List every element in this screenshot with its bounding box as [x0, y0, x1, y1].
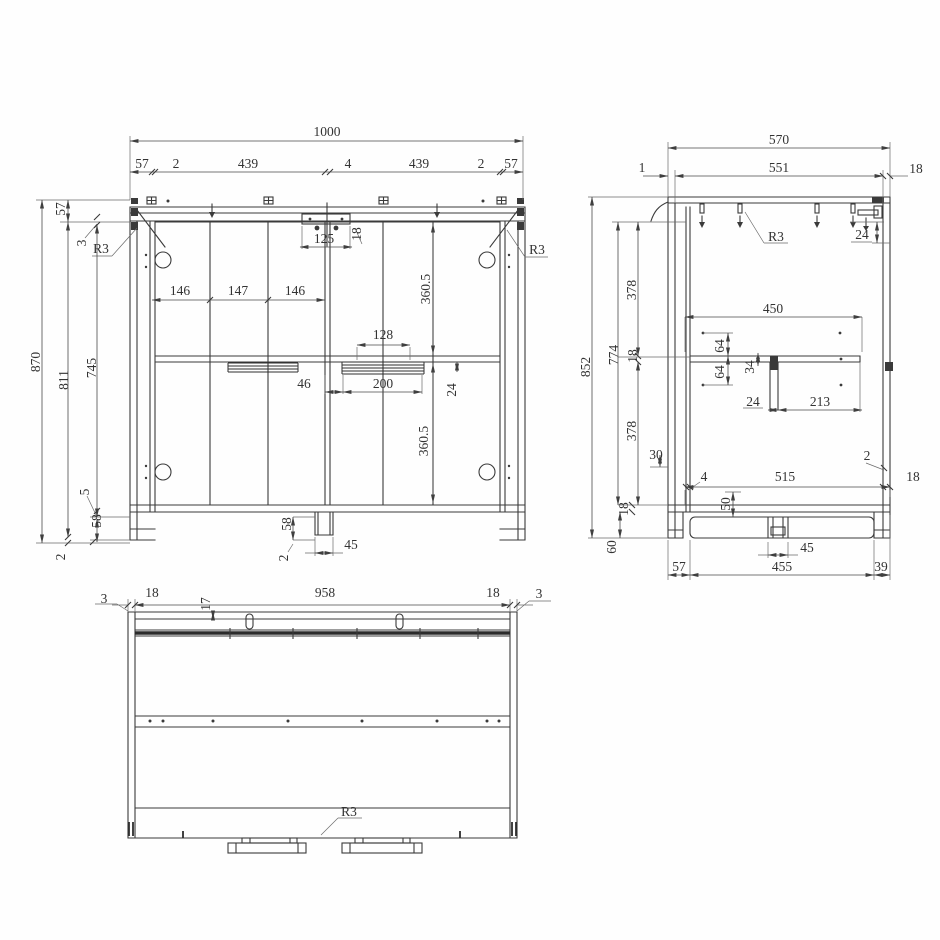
- dim-200: 200: [373, 376, 394, 391]
- dim-551: 551: [769, 160, 789, 175]
- dim-foot-45: 45: [344, 537, 358, 552]
- front-extension-lines: [36, 136, 548, 556]
- bracket-hole-icon: [309, 218, 312, 221]
- dim-5v: 5: [77, 488, 92, 495]
- screw-hole-dots: [149, 720, 501, 723]
- dim-378-upper: 378: [624, 280, 639, 301]
- dim-foot-2: 2: [276, 555, 291, 562]
- dim-top-seg: 2: [478, 156, 485, 171]
- dim-24-mid: 24: [746, 394, 760, 409]
- drawing-page: 1000 57 2 439 4 439 2 57 870 811 745 57 …: [0, 0, 940, 940]
- hanging-slot-icon: [246, 614, 253, 629]
- dim-18-right: 18: [906, 469, 920, 484]
- dim-58v: 58: [89, 514, 104, 528]
- dim-360-lower: 360.5: [416, 426, 431, 457]
- front-view: 1000 57 2 439 4 439 2 57 870 811 745 57 …: [28, 124, 548, 561]
- cam-lock-holes: [145, 252, 510, 480]
- dim-958: 958: [315, 585, 336, 600]
- front-structure: [130, 207, 525, 540]
- dim-18-right: 18: [486, 585, 500, 600]
- drawer-slide-hatch: [228, 362, 424, 374]
- support-cap: [770, 356, 778, 370]
- dim-64-dn: 64: [712, 365, 727, 379]
- dim-455: 455: [772, 559, 793, 574]
- dim-125: 125: [314, 231, 335, 246]
- dim-top-seg: 439: [409, 156, 430, 171]
- dim-hinge: 146: [170, 283, 191, 298]
- dim-34: 34: [742, 360, 757, 374]
- bracket-pin-icon: [315, 226, 320, 231]
- dim-378-lower: 378: [624, 421, 639, 442]
- dim-360-upper: 360.5: [418, 274, 433, 305]
- dim-18: 18: [349, 227, 364, 241]
- radius-label: R3: [341, 804, 357, 819]
- side-clip-icon: [885, 362, 893, 371]
- dim-46: 46: [297, 376, 311, 391]
- dim-2v: 2: [53, 554, 68, 561]
- dim-24: 24: [444, 383, 459, 397]
- dim-top-seg: 57: [135, 156, 149, 171]
- dim-57v: 57: [53, 202, 68, 216]
- leader-curve-1: [651, 202, 668, 221]
- dim-450: 450: [763, 301, 784, 316]
- bracket-hole-icon: [341, 218, 344, 221]
- side-view: 570 551 1 18 R3 24 852 774 378 18 378 30…: [578, 132, 923, 580]
- dim-foot-58: 58: [279, 517, 294, 531]
- hanging-slot-icon: [396, 614, 403, 629]
- bottom-rails: [228, 838, 422, 853]
- dim-24-top: 24: [855, 227, 869, 242]
- dim-4: 4: [701, 469, 708, 484]
- bottom-structure: [128, 612, 517, 838]
- corner-foot-marks: [129, 822, 516, 838]
- dim-57: 57: [672, 559, 686, 574]
- dim-128: 128: [373, 327, 394, 342]
- dim-852: 852: [578, 357, 593, 377]
- dim-top-seg: 2: [173, 156, 180, 171]
- dim-17: 17: [198, 597, 213, 611]
- dim-745: 745: [84, 358, 99, 379]
- radius-label-left: R3: [93, 241, 109, 256]
- dim-30: 30: [649, 447, 663, 462]
- dim-1: 1: [639, 160, 646, 175]
- dim-top-seg: 439: [238, 156, 259, 171]
- dim-3-right: 3: [536, 586, 543, 601]
- dim-hinge: 147: [228, 283, 249, 298]
- dim-811: 811: [56, 370, 71, 390]
- blueprint-canvas: 1000 57 2 439 4 439 2 57 870 811 745 57 …: [0, 0, 940, 940]
- dim-top-seg: 4: [345, 156, 352, 171]
- dim-39: 39: [874, 559, 888, 574]
- dim-2: 2: [864, 448, 871, 463]
- dim-overall-height: 870: [28, 352, 43, 373]
- dim-50: 50: [718, 497, 733, 511]
- bracket-pin-icon: [334, 226, 339, 231]
- bottom-view: 3 18 958 18 3 17 R3: [95, 585, 551, 853]
- dim-18-top: 18: [909, 161, 923, 176]
- dim-213: 213: [810, 394, 831, 409]
- dim-3v: 3: [74, 239, 89, 246]
- dim-top-seg: 57: [504, 156, 518, 171]
- dim-45: 45: [800, 540, 814, 555]
- dim-3-left: 3: [101, 591, 108, 606]
- dim-60: 60: [604, 540, 619, 554]
- dim-18-mid: 18: [625, 349, 640, 363]
- radius-label-right: R3: [529, 242, 545, 257]
- dim-overall-depth: 570: [769, 132, 790, 147]
- dim-overall-width: 1000: [314, 124, 341, 139]
- radius-label: R3: [768, 229, 784, 244]
- dim-hinge: 146: [285, 283, 306, 298]
- dim-774: 774: [606, 345, 621, 366]
- dim-18-bottom: 18: [616, 502, 631, 516]
- dim-18-left: 18: [145, 585, 159, 600]
- dim-515: 515: [775, 469, 796, 484]
- front-dimension-lines: [42, 141, 523, 553]
- dim-64-up: 64: [712, 339, 727, 353]
